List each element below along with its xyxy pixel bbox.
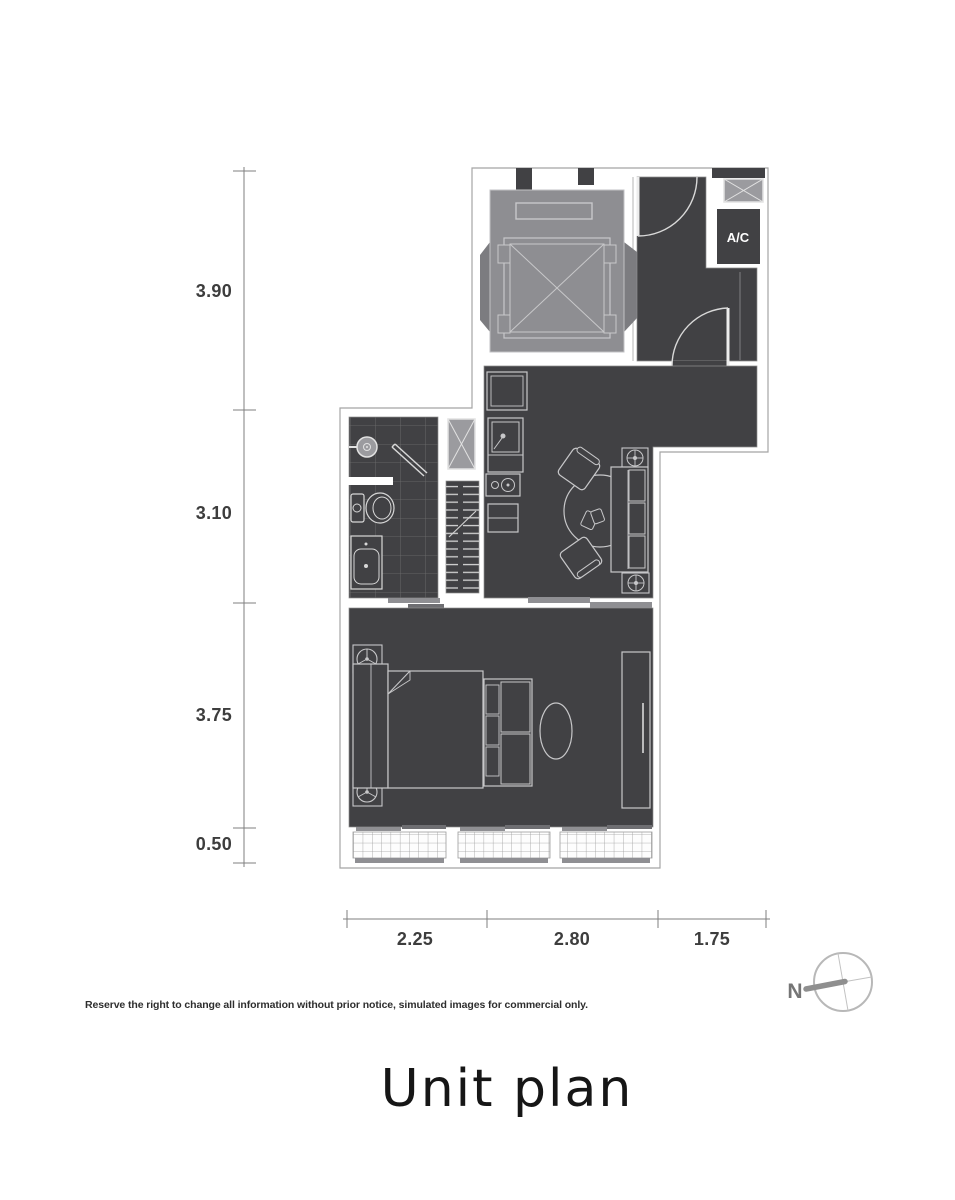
balcony-grille: [458, 832, 550, 863]
compass-needle: [806, 982, 845, 990]
balcony-grille: [353, 832, 446, 863]
page-title: Unit plan: [381, 1059, 634, 1119]
compass: N: [787, 953, 872, 1011]
bed: [353, 664, 483, 788]
vertical-dim-label: 0.50: [148, 834, 232, 855]
wardrobe: [446, 481, 479, 593]
horizontal-dim-label: 2.80: [554, 929, 590, 950]
toilet: [351, 493, 394, 523]
north-label: N: [787, 980, 802, 1003]
shaft-hatch: [448, 419, 475, 469]
balcony-grille: [560, 832, 652, 863]
horizontal-dim-label: 1.75: [694, 929, 730, 950]
vertical-dim-label: 3.75: [148, 705, 232, 726]
elevator-counterweight: [624, 242, 637, 332]
core-wall-stub: [516, 168, 532, 190]
side-table: [622, 573, 649, 593]
bed-bench: [484, 679, 532, 786]
horizontal-dim-label: 2.25: [397, 929, 433, 950]
pouf: [540, 703, 572, 759]
half-wall: [345, 477, 393, 485]
vertical-dim-label: 3.90: [148, 281, 232, 302]
vertical-dim-label: 3.10: [148, 503, 232, 524]
sofa: [611, 467, 648, 572]
disclaimer-text: Reserve the right to change all informat…: [85, 999, 588, 1011]
elevator-counterweight: [480, 242, 490, 332]
dresser: [622, 652, 650, 808]
vanity-sink: [351, 536, 382, 589]
living-dining: [484, 366, 757, 598]
ac-label: A/C: [727, 230, 750, 245]
core-wall-stub: [578, 168, 594, 185]
bathroom: [345, 417, 438, 598]
elevator-core: [480, 168, 637, 361]
floor-plan-svg: A/C: [0, 0, 955, 1200]
bedroom: [349, 608, 653, 827]
side-table: [622, 448, 648, 467]
